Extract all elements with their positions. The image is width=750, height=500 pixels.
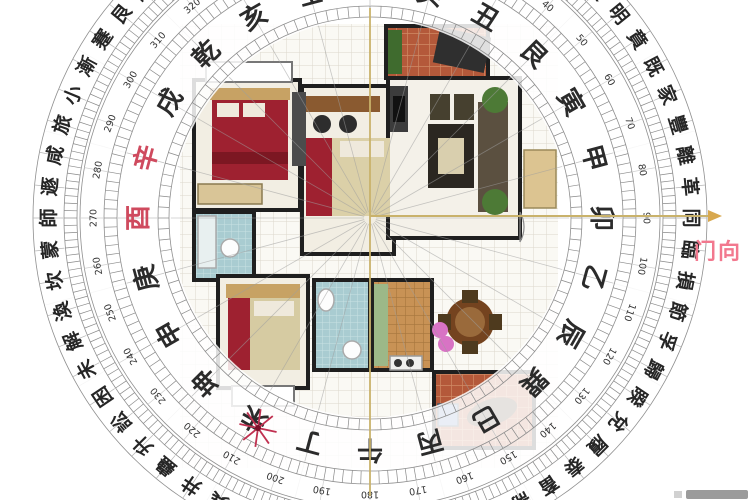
coffee-table-tray: [438, 138, 464, 174]
feng-shui-compass-overlay: 子癸丑艮寅甲卯乙辰巽巳丙午丁未坤申庚酉辛戌乾亥壬0102030405060708…: [0, 0, 750, 500]
balcony-plant: [388, 30, 402, 74]
dresser-1: [198, 184, 262, 204]
dining-table-top: [455, 307, 485, 337]
stool-b: [339, 115, 357, 133]
plant-a: [482, 87, 508, 113]
vanity-2: [306, 96, 380, 112]
kitchen-counter: [374, 284, 388, 366]
armchair-a: [430, 94, 450, 120]
hexagram-char: 蒙: [39, 239, 63, 260]
entry-cabinet: [524, 150, 556, 208]
mountain-char: 子: [357, 0, 383, 2]
armchair-b: [454, 94, 474, 120]
red-marker-center: [255, 425, 261, 431]
mountain-char: 卯: [586, 205, 616, 231]
mountain-char: 酉: [124, 205, 154, 231]
burner-a: [394, 359, 402, 367]
degree-label: 90: [641, 212, 652, 224]
compass-floorplan-canvas: 子癸丑艮寅甲卯乙辰巽巳丙午丁未坤申庚酉辛戌乾亥壬0102030405060708…: [0, 0, 750, 500]
bed1-pillow-a: [217, 103, 239, 117]
hexagram-char: 同: [680, 208, 702, 227]
hexagram-char: 革: [678, 176, 703, 197]
bed3-headboard: [226, 284, 300, 298]
bed2-pillow: [340, 141, 384, 157]
plant-b: [482, 189, 508, 215]
bath1-sink: [221, 239, 239, 257]
bed3-runner: [228, 298, 250, 370]
door-direction-label: 门向: [694, 234, 750, 266]
bed1-throw: [212, 152, 288, 164]
dining-chair-s: [462, 341, 478, 354]
degree-label: 80: [635, 163, 648, 177]
dining-chair-n: [462, 290, 478, 303]
hexagram-char: 遯: [39, 176, 63, 197]
bath2-sink: [343, 341, 361, 359]
dining-chair-e: [489, 314, 502, 330]
degree-label: 270: [89, 209, 100, 227]
watermark-bar: [686, 490, 748, 499]
hexagram-char: 師: [37, 208, 60, 227]
toilet: [318, 289, 334, 311]
door-direction-arrow: [708, 210, 722, 222]
